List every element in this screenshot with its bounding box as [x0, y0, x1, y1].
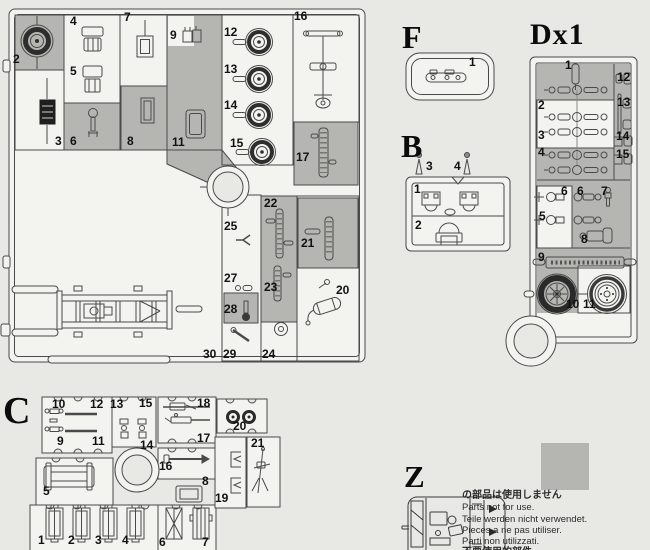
part-number-13: 13 [224, 64, 237, 74]
part-number-2: 2 [538, 100, 545, 110]
part-number-9: 9 [170, 30, 177, 40]
part-number-11: 11 [172, 137, 185, 147]
part-number-17: 17 [296, 152, 309, 162]
part-number-13: 13 [617, 97, 630, 107]
part-number-4: 4 [538, 147, 545, 157]
part-number-25: 25 [224, 221, 237, 231]
part-number-15: 15 [139, 398, 152, 408]
part-number-6: 6 [577, 186, 584, 196]
sprue-d-letter: Dx1 [530, 20, 585, 50]
legend-line-french: Pieces a ne pas utiliser. [462, 525, 587, 536]
part-number-5: 5 [43, 486, 50, 496]
part-number-3: 3 [426, 161, 433, 171]
part-number-14: 14 [224, 100, 237, 110]
part-number-8: 8 [127, 136, 134, 146]
sprue-c-letter: C [3, 392, 30, 430]
part-number-1: 1 [565, 60, 572, 70]
legend-line-italian: Parti non utilizzati. [462, 536, 587, 547]
part-number-14: 14 [616, 131, 629, 141]
part-number-7: 7 [601, 186, 608, 196]
part-number-3: 3 [95, 535, 102, 545]
part-number-12: 12 [617, 72, 630, 82]
part-number-1: 1 [469, 57, 476, 67]
part-number-30: 30 [203, 349, 216, 359]
part-number-20: 20 [233, 421, 246, 431]
part-number-7: 7 [202, 537, 209, 547]
sprue-f-drawing [406, 53, 494, 100]
part-number-2: 2 [13, 54, 20, 64]
part-number-1: 1 [414, 184, 421, 194]
sprue-b-letter: B [401, 130, 422, 162]
part-number-6: 6 [70, 136, 77, 146]
part-number-2: 2 [68, 535, 75, 545]
part-number-27: 27 [224, 273, 237, 283]
part-number-29: 29 [223, 349, 236, 359]
part-number-21: 21 [251, 438, 264, 448]
not-for-use-legend: の部品は使用しません Parts not for use. Teile werd… [462, 490, 587, 550]
part-number-3: 3 [538, 130, 545, 140]
part-number-13: 13 [110, 399, 123, 409]
part-number-6: 6 [561, 186, 568, 196]
part-number-5: 5 [70, 66, 77, 76]
part-number-9: 9 [538, 252, 545, 262]
part-number-10: 10 [52, 399, 65, 409]
part-number-8: 8 [581, 234, 588, 244]
part-number-5: 5 [539, 211, 546, 221]
part-number-19: 19 [215, 493, 228, 503]
part-number-20: 20 [336, 285, 349, 295]
part-number-6: 6 [159, 537, 166, 547]
part-b4-bulb [464, 153, 470, 175]
legend-line-english: Parts not for use. [462, 501, 587, 514]
part-number-4: 4 [70, 16, 77, 26]
part-number-21: 21 [301, 238, 314, 248]
part-number-15: 15 [616, 149, 629, 159]
sprue-a-drawing [1, 9, 365, 363]
part-number-18: 18 [197, 398, 210, 408]
part-number-16: 16 [159, 461, 172, 471]
sprue-f-letter: F [402, 21, 422, 53]
instruction-sheet-page: F B Dx1 C Z 2345678911121314151617222123… [0, 0, 650, 550]
part-number-4: 4 [122, 535, 129, 545]
part-number-28: 28 [224, 304, 237, 314]
part-number-1: 1 [38, 535, 45, 545]
part-number-12: 12 [224, 27, 237, 37]
part-number-4: 4 [454, 161, 461, 171]
part-number-10: 10 [566, 299, 579, 309]
part-number-24: 24 [262, 349, 275, 359]
legend-line-german: Teile werden nicht verwendet. [462, 514, 587, 525]
part-number-16: 16 [294, 11, 307, 21]
part-number-3: 3 [55, 136, 62, 146]
part-number-12: 12 [90, 399, 103, 409]
part-c8-box [176, 486, 202, 502]
part-number-9: 9 [57, 436, 64, 446]
part-number-15: 15 [230, 138, 243, 148]
part-number-14: 14 [140, 440, 153, 450]
part-number-11: 11 [583, 299, 596, 309]
part-number-7: 7 [124, 12, 131, 22]
part-number-2: 2 [415, 220, 422, 230]
part-number-8: 8 [202, 476, 209, 486]
part-number-22: 22 [264, 198, 277, 208]
part-number-11: 11 [92, 436, 105, 446]
not-for-use-swatch [541, 443, 589, 490]
part-number-23: 23 [264, 282, 277, 292]
legend-line-japanese: の部品は使用しません [462, 490, 587, 501]
part-number-17: 17 [197, 433, 210, 443]
sprue-z-letter: Z [404, 461, 425, 492]
